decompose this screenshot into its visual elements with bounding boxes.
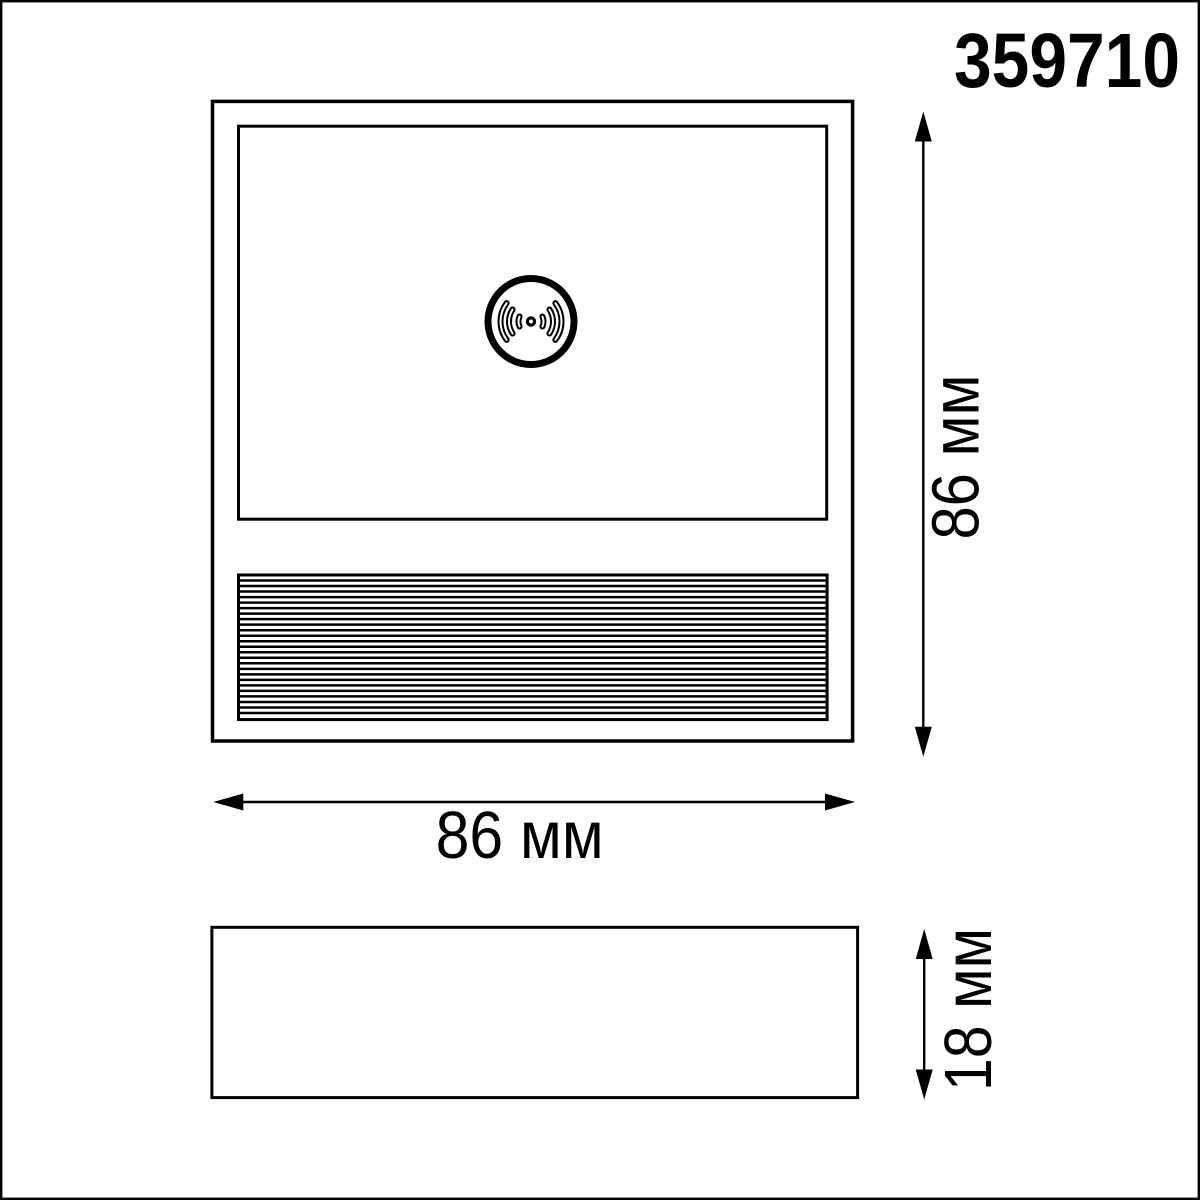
svg-text:86 мм: 86 мм bbox=[436, 798, 604, 873]
svg-text:18 мм: 18 мм bbox=[931, 928, 1006, 1091]
svg-text:359710: 359710 bbox=[954, 18, 1180, 104]
svg-text:86 мм: 86 мм bbox=[919, 375, 994, 540]
